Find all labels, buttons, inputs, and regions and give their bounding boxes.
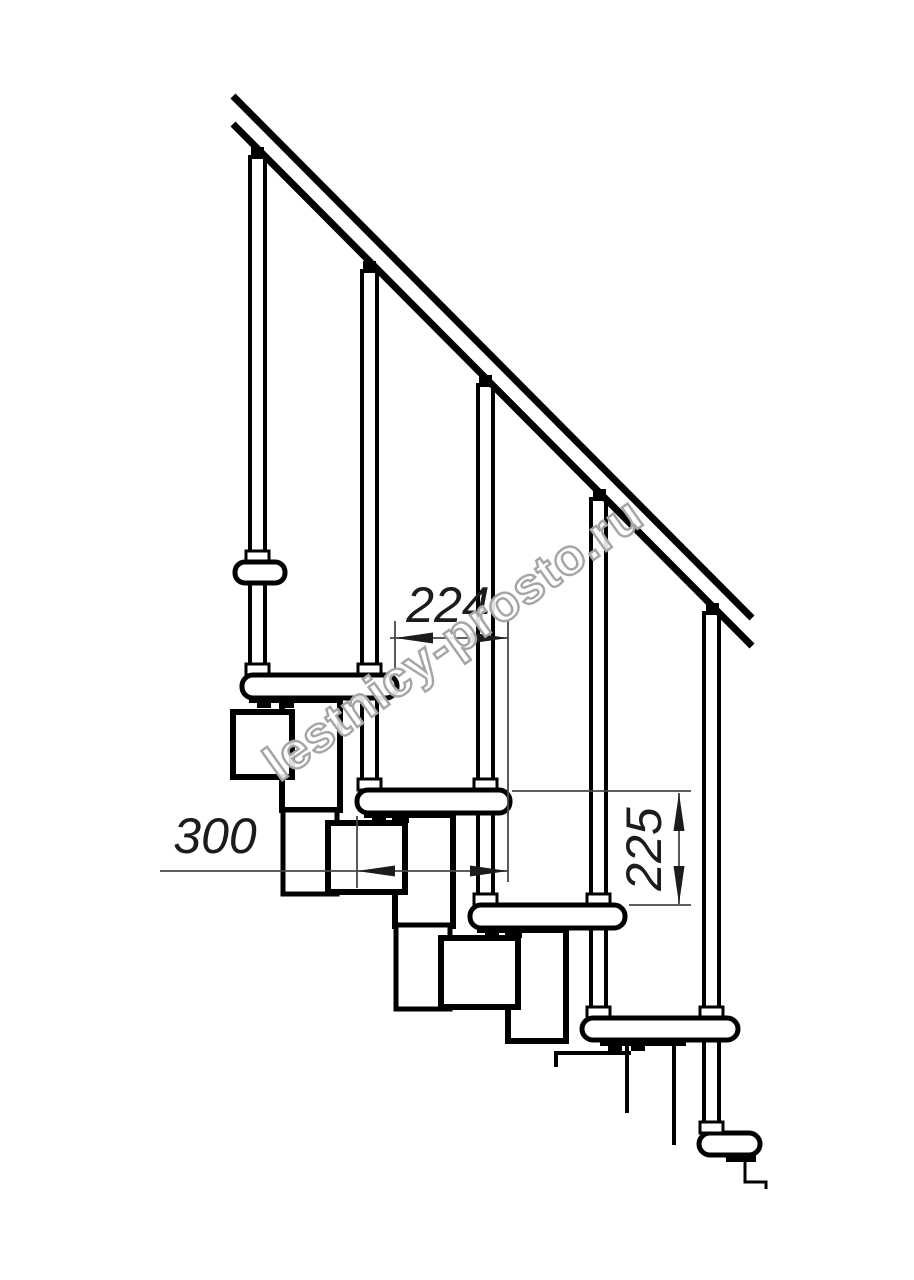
floor-step-line xyxy=(745,1162,766,1189)
collar xyxy=(700,1122,723,1133)
tread-2 xyxy=(357,790,510,813)
dimension-rise-value: 225 xyxy=(616,807,672,892)
baluster-1 xyxy=(250,157,265,675)
module-sleeve-2 xyxy=(328,823,405,892)
module-sleeve-3 xyxy=(441,938,518,1007)
baluster-5 xyxy=(704,613,719,1133)
baluster-foot-pad xyxy=(699,1133,760,1155)
arrow-down xyxy=(674,866,685,904)
dimension-depth-value: 300 xyxy=(173,808,257,864)
stair-drawing-canvas: 224 300 225 lestnicy-prosto.ru xyxy=(0,0,914,1280)
floor-mount xyxy=(699,1133,766,1189)
module-sleeve-4-partial xyxy=(556,1053,631,1067)
tread-3 xyxy=(470,905,625,928)
arrow-up xyxy=(674,793,685,831)
tread-top-landing xyxy=(235,562,285,583)
baluster-4 xyxy=(591,499,606,1018)
stair-drawing: 224 300 225 lestnicy-prosto.ru xyxy=(0,0,914,1280)
tread-4 xyxy=(582,1018,738,1040)
foot-bracket xyxy=(726,1153,756,1162)
